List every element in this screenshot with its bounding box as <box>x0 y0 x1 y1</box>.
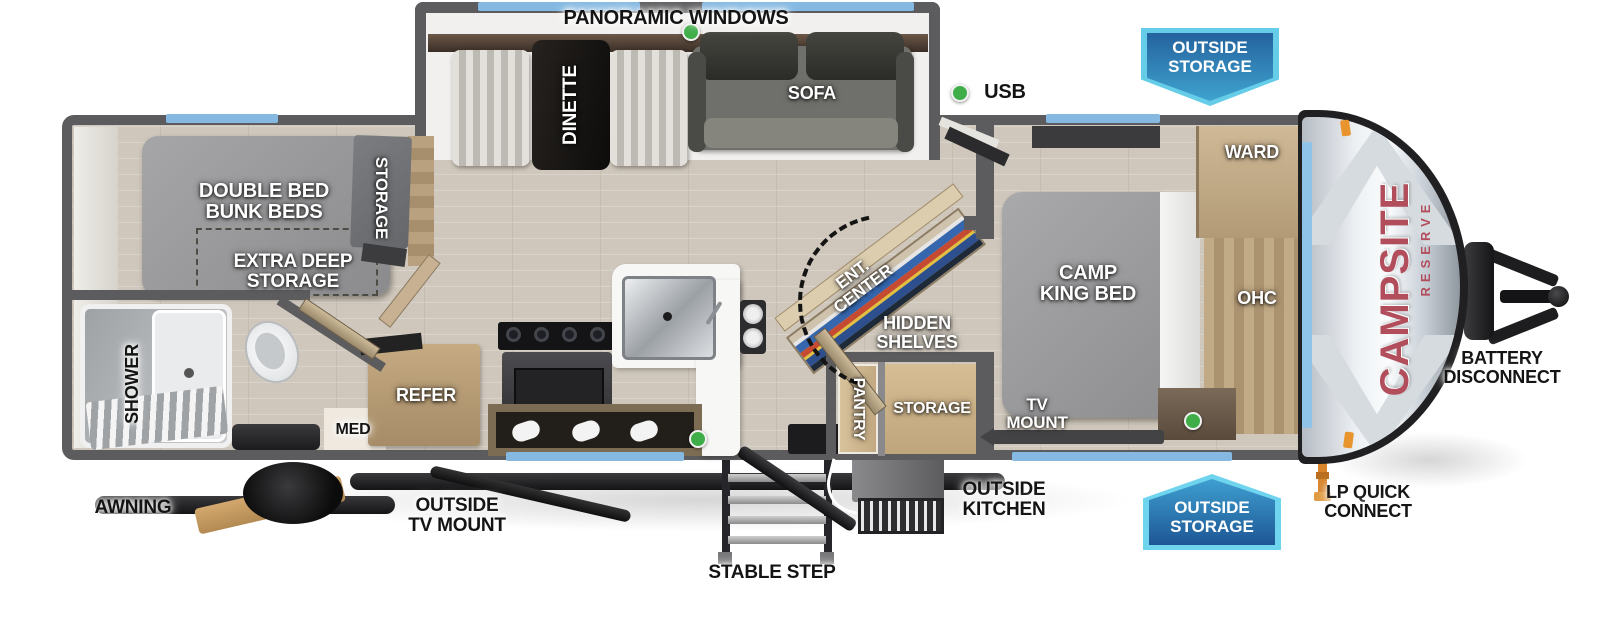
brand-sub: RESERVE <box>1416 188 1436 308</box>
window-strip <box>506 452 684 461</box>
badge-outside-storage-top: OUTSIDE STORAGE <box>1141 28 1279 106</box>
label-camp-king-bed: CAMP KING BED <box>1008 262 1168 306</box>
sofa-back-cushion <box>700 32 798 80</box>
window-strip <box>166 114 278 123</box>
label-panoramic-windows: PANORAMIC WINDOWS <box>536 6 816 30</box>
label-med: MED <box>323 419 383 441</box>
label-ohc: OHC <box>1217 287 1297 309</box>
wardrobe-column <box>408 136 434 266</box>
dinette-bench <box>610 50 688 166</box>
shower-drain <box>184 368 194 378</box>
badge-outside-storage-bottom: OUTSIDE STORAGE <box>1143 474 1281 550</box>
label-double-bed-bunk-beds: DOUBLE BED BUNK BEDS <box>164 180 364 224</box>
wall-stub <box>964 216 994 230</box>
label-tv-mount: TV MOUNT <box>995 392 1079 436</box>
label-lp-quick-connect: LP QUICK CONNECT <box>1300 480 1436 524</box>
bath-sink-counter <box>232 424 320 450</box>
bed-bench <box>1032 126 1160 148</box>
label-dinette: DINETTE <box>559 45 583 165</box>
tv-mount-arrow <box>980 428 994 446</box>
label-outside-tv-mount: OUTSIDE TV MOUNT <box>367 494 547 538</box>
burner <box>562 327 577 342</box>
kitchen-usb-indicator-icon <box>689 430 707 448</box>
label-hidden-shelves: HIDDEN SHELVES <box>855 311 979 355</box>
burner-round <box>743 304 763 324</box>
label-extra-deep-storage: EXTRA DEEP STORAGE <box>193 250 393 294</box>
dinette-bench <box>452 50 530 166</box>
brand-logo: CAMPSITE <box>1375 189 1417 389</box>
front-window-strip <box>1302 142 1312 428</box>
label-ward: WARD <box>1212 141 1292 163</box>
window-strip <box>1012 452 1232 461</box>
burner-round <box>743 328 763 348</box>
label-sofa: SOFA <box>762 82 862 104</box>
usb-indicator-icon <box>951 84 969 102</box>
sofa-seat <box>704 118 898 148</box>
badge-label: OUTSIDE STORAGE <box>1149 490 1275 546</box>
label-usb: USB <box>975 80 1035 104</box>
label-storage-mid: STORAGE <box>882 398 982 420</box>
burner <box>506 327 521 342</box>
label-stable-step: STABLE STEP <box>672 562 872 584</box>
label-awning: AWNING <box>63 496 203 520</box>
window-strip <box>1046 114 1160 123</box>
floorplan-diagram: CAMPSITE RESERVE OUTSIDE STORAGE OUTSIDE… <box>0 0 1600 625</box>
burner <box>590 327 605 342</box>
label-battery-disconnect: BATTERY DISCONNECT <box>1422 346 1582 390</box>
label-shower: SHOWER <box>120 324 144 444</box>
bedroom-usb-indicator-icon <box>1184 412 1202 430</box>
sofa-armrest <box>896 52 914 152</box>
sink-drain <box>663 312 672 321</box>
wheel <box>243 462 343 524</box>
label-storage-bunk: STORAGE <box>369 138 393 258</box>
label-outside-kitchen: OUTSIDE KITCHEN <box>933 478 1075 522</box>
sofa-back-cushion <box>806 32 904 80</box>
burner <box>534 327 549 342</box>
label-pantry: PANTRY <box>846 359 870 459</box>
tongue-jack <box>1464 242 1494 340</box>
badge-label: OUTSIDE STORAGE <box>1147 30 1273 86</box>
label-refer: REFER <box>376 384 476 406</box>
